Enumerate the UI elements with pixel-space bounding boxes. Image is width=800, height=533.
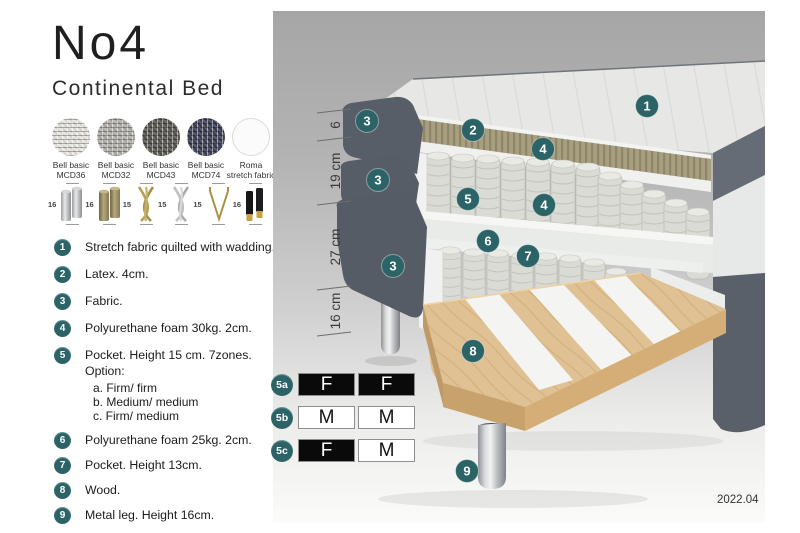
fabric-name: Bell basic [98,160,134,170]
spec-options: a. Firm/ firm b. Medium/ medium c. Firm/… [93,381,280,423]
spec-number-badge: 4 [54,320,71,337]
spec-text: Metal leg. Height 16cm. [85,507,214,524]
firmness-badge: 5c [271,440,293,462]
spec-text: Pocket. Height 13cm. [85,457,202,474]
spec-option-c: c. Firm/ medium [93,409,280,423]
fabric-swatch: Bell basicMCD74 [186,118,226,180]
spec-item-5: 5 Pocket. Height 15 cm. 7zones. Option: … [54,347,280,423]
spec-text: Polyurethane foam 30kg. 2cm. [85,320,252,337]
firmness-row-5a: 5a F F [271,373,415,396]
spec-number-badge: 1 [54,239,71,256]
spec-number-badge: 9 [54,507,71,524]
firmness-cell: F [298,439,355,462]
gold-cross-leg-icon [134,185,158,223]
spec-item-9: 9 Metal leg. Height 16cm. [54,507,280,524]
bed-right-side [713,126,765,432]
leg-option: 16 [233,183,266,225]
fabric-name: Bell basic [188,160,224,170]
spec-text: Latex. 4cm. [85,266,149,283]
spec-text: Polyurethane foam 25kg. 2cm. [85,432,252,449]
leg-height: 15 [123,200,131,209]
silver-cross-leg-icon [169,185,193,223]
firmness-options: 5a F F 5b M M 5c F M [271,373,415,472]
firmness-cell: F [298,373,355,396]
svg-text:2: 2 [469,123,476,138]
leg-option: 15 [123,183,158,225]
svg-text:3: 3 [363,114,370,129]
spec-item-1: 1 Stretch fabric quilted with wadding. [54,239,280,256]
callout-badge-3b: 3 [367,169,390,192]
fabric-code: MCD32 [102,170,131,180]
spec-list: 1 Stretch fabric quilted with wadding. 2… [54,239,280,532]
leg-option: 15 [158,183,193,225]
tier3-fabric-corner [337,192,427,318]
black-gold-leg-pair-icon [244,185,266,223]
callout-badge-7: 7 [517,245,540,268]
fabric-code: MCD36 [57,170,86,180]
version-date: 2022.04 [717,494,759,506]
fabric-swatch-row: Bell basicMCD36 Bell basicMCD32 Bell bas… [51,118,271,180]
spec-item-2: 2 Latex. 4cm. [54,266,280,283]
spec-item-3: 3 Fabric. [54,293,280,310]
callout-badge-3a: 3 [356,110,379,133]
fabric-code: stretch fabric [227,170,276,180]
svg-text:6: 6 [484,234,491,249]
hairpin-leg-icon [205,185,233,223]
firmness-row-5b: 5b M M [271,406,415,429]
spec-number-badge: 8 [54,482,71,499]
spec-option-a: a. Firm/ firm [93,381,280,395]
svg-text:7: 7 [524,249,531,264]
product-title: No4 [52,20,224,68]
callout-badge-4a: 4 [532,138,555,161]
firmness-row-5c: 5c F M [271,439,415,462]
fabric-swatch-circle [232,118,270,156]
leg-options-row: 16 16 15 [48,183,266,225]
spec-item-8: 8 Wood. [54,482,280,499]
spec-number-badge: 5 [54,347,71,364]
title-block: No4 Continental Bed [52,20,224,101]
measure-base: 27 cm [328,229,343,266]
callout-badge-9: 9 [456,460,479,483]
leg-height: 15 [193,200,201,209]
leg-height: 16 [48,200,56,209]
fabric-swatch-circle [187,118,225,156]
firmness-cell: F [358,373,415,396]
fabric-swatch-circle [97,118,135,156]
leg-option: 16 [85,183,122,225]
fabric-code: MCD74 [192,170,221,180]
spec-number-badge: 3 [54,293,71,310]
front-metal-leg [478,423,506,489]
leg-option: 16 [48,183,85,225]
svg-text:4: 4 [539,142,547,157]
firmness-badge: 5b [271,407,293,429]
spec-text: Pocket. Height 15 cm. 7zones. Option: [85,347,280,380]
spec-option-b: b. Medium/ medium [93,395,280,409]
firmness-cell: M [298,406,355,429]
callout-badge-8: 8 [462,340,485,363]
fabric-name: Bell basic [53,160,89,170]
callout-badge-1: 1 [636,95,659,118]
leg-option: 15 [193,183,232,225]
callout-badge-6: 6 [477,230,500,253]
firmness-cell: M [358,439,415,462]
chrome-leg-pair-icon [59,185,85,223]
svg-text:5: 5 [464,192,471,207]
callout-badge-4b: 4 [533,194,556,217]
spec-item-6: 6 Polyurethane foam 25kg. 2cm. [54,432,280,449]
spec-number-badge: 7 [54,457,71,474]
firmness-badge: 5a [271,374,293,396]
fabric-swatch: Bell basicMCD43 [141,118,181,180]
fabric-swatch-circle [142,118,180,156]
svg-text:9: 9 [463,464,470,479]
measure-middle-mattress: 19 cm [328,153,343,190]
callout-badge-2: 2 [462,119,485,142]
fabric-swatch: Bell basicMCD32 [96,118,136,180]
spec-number-badge: 6 [54,432,71,449]
svg-text:3: 3 [389,259,396,274]
spec-item-7: 7 Pocket. Height 13cm. [54,457,280,474]
fabric-code: MCD43 [147,170,176,180]
spec-text: Wood. [85,482,120,499]
fabric-swatch-circle [52,118,90,156]
leg-height: 16 [85,200,93,209]
measure-top-layer: 6 [328,121,343,129]
measure-leg: 16 cm [328,293,343,330]
fabric-name: Roma [240,160,263,170]
svg-text:4: 4 [540,198,548,213]
spec-text: Stretch fabric quilted with wadding. [85,239,275,256]
spec-number-badge: 2 [54,266,71,283]
svg-text:8: 8 [469,344,476,359]
product-subtitle: Continental Bed [52,77,224,101]
fabric-name: Bell basic [143,160,179,170]
fabric-swatch: Bell basicMCD36 [51,118,91,180]
wood-leg-pair-icon [97,185,123,223]
spec-text: Fabric. [85,293,123,310]
svg-text:1: 1 [643,99,650,114]
callout-badge-5: 5 [457,188,480,211]
firmness-cell: M [358,406,415,429]
leg-height: 15 [158,200,166,209]
fabric-swatch: Romastretch fabric [231,118,271,180]
leg-height: 16 [233,200,241,209]
spec-item-4: 4 Polyurethane foam 30kg. 2cm. [54,320,280,337]
svg-text:3: 3 [374,173,381,188]
callout-badge-3c: 3 [382,255,405,278]
